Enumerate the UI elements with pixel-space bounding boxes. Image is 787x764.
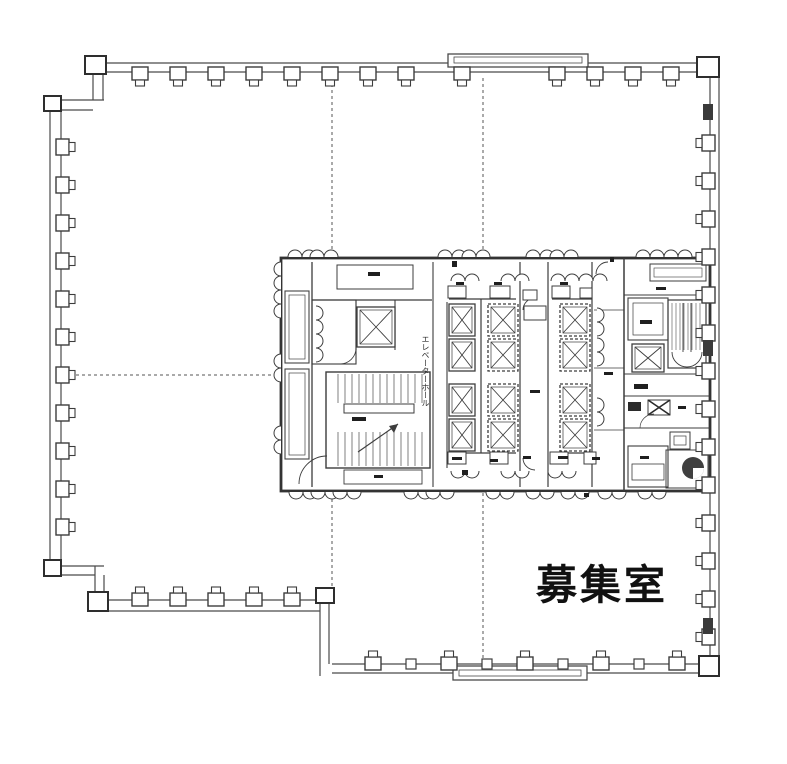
window-column [56,481,75,497]
window-column [696,553,715,569]
window-column [696,135,715,151]
scallop-vent [526,492,554,499]
label-tick [584,493,589,497]
window-column [208,587,224,606]
column-block [593,657,609,670]
column-block [702,211,715,227]
column-cap [696,633,702,642]
column-block [56,215,69,231]
label-tick [368,272,380,276]
label-tick [494,282,502,285]
column-cap [402,80,411,86]
column-block [702,553,715,569]
door-stub [580,288,592,298]
column-cap [69,181,75,190]
window-column [454,67,470,86]
elevator-shaft [560,339,590,371]
column-block [454,67,470,80]
column-block [365,657,381,670]
window-column [549,67,565,86]
window-column [56,519,75,535]
label-tick [640,320,652,324]
column-cap [667,80,676,86]
column-block [398,67,414,80]
elevator-shaft [449,304,475,336]
window-column [322,67,338,86]
column-block [322,67,338,80]
label-tick [490,459,498,462]
column-block [56,329,69,345]
label-tick [656,287,666,290]
window-column [56,405,75,421]
column-block [702,249,715,265]
column-block [663,67,679,80]
window-column [587,67,603,86]
column-block [56,367,69,383]
column-block [587,67,603,80]
column-block [702,287,715,303]
column-block [284,67,300,80]
column-block [56,291,69,307]
window-column [441,651,457,670]
wall-jog [703,104,713,120]
door-stub [524,306,546,320]
column-block [634,659,644,669]
scallop-vent [274,262,281,290]
column-block [702,515,715,531]
column-cap [369,651,378,657]
elevator-hall-label: エレベーターホール [420,335,431,419]
elevator-shaft [488,419,518,451]
scallop-vent [274,426,281,454]
column-cap [326,80,335,86]
column-cap [696,367,702,376]
elevator-shaft [560,304,590,336]
column-cap [250,587,259,593]
column-cap [696,329,702,338]
column-block [441,657,457,670]
window-column [56,253,75,269]
window-column [132,67,148,86]
window-column [56,291,75,307]
column-cap [174,80,183,86]
column-block [170,593,186,606]
column-cap [445,651,454,657]
column-cap [553,80,562,86]
column-block [56,443,69,459]
elevator-shaft [488,384,518,416]
door-stub [490,452,508,464]
column-cap [212,587,221,593]
column-block [284,593,300,606]
window-column [284,587,300,606]
column-cap [696,443,702,452]
column-cap [69,257,75,266]
column-cap [69,295,75,304]
window-column [208,67,224,86]
window-column [625,67,641,86]
scallop-vent [550,250,578,257]
column-cap [696,481,702,490]
window-column [284,67,300,86]
column-block [132,593,148,606]
column-block [246,67,262,80]
label-tick [604,372,613,375]
window-column [634,659,644,669]
column-cap [696,177,702,186]
column-cap [673,651,682,657]
window-column [56,367,75,383]
elevator-shaft [560,384,590,416]
column-cap [69,143,75,152]
wall-jog [703,618,713,634]
column-block [702,591,715,607]
column-block [702,363,715,379]
column-cap [696,215,702,224]
door-stub [448,286,466,298]
column-cap [69,523,75,532]
scallop-vent [333,492,361,499]
column-cap [458,80,467,86]
column-cap [696,557,702,566]
label-tick [352,417,366,421]
column-block [56,519,69,535]
label-tick [456,282,464,285]
door-stub [552,286,570,298]
column-block [702,401,715,417]
elevator-shaft [357,307,395,347]
elevator-shaft [449,419,475,451]
window-column [170,67,186,86]
window-column [696,173,715,189]
window-column [56,177,75,193]
window-column [56,139,75,155]
label-tick [452,457,462,460]
scallop-vent [486,492,514,499]
column-block [517,657,533,670]
column-block [208,593,224,606]
column-block [702,477,715,493]
label-tick [634,384,648,389]
column-cap [69,219,75,228]
column-cap [288,80,297,86]
scallop-vent [638,492,666,499]
window-column [517,651,533,670]
elevator-shaft [488,304,518,336]
label-tick [678,406,686,409]
column-block [246,593,262,606]
scallop-vent [274,290,281,318]
column-cap [69,371,75,380]
label-tick [462,470,468,475]
column-block [702,135,715,151]
column-block [702,325,715,341]
elevator-shaft [488,339,518,371]
window-column [696,591,715,607]
column-block [56,405,69,421]
column-cap [136,587,145,593]
column-block [702,173,715,189]
window-column [56,443,75,459]
label-tick [560,282,568,285]
scallop-vent [274,354,281,382]
window-column [593,651,609,670]
column-cap [629,80,638,86]
window-column [132,587,148,606]
label-tick [523,456,531,459]
label-tick [452,261,457,267]
window-column [365,651,381,670]
window-column [398,67,414,86]
elevator-shaft [449,384,475,416]
scallop-vent [598,492,626,499]
scallop-vent [462,250,490,257]
column-cap [696,253,702,262]
label-tick [592,457,600,460]
window-column [360,67,376,86]
column-cap [521,651,530,657]
floor-plan-page: 募集室 エレベーターホール [0,0,787,764]
column-cap [696,139,702,148]
column-cap [69,409,75,418]
floor-plan [0,0,787,764]
window-column [696,211,715,227]
window-column [56,329,75,345]
vacant-room-label: 募集室 [536,551,668,611]
column-cap [69,447,75,456]
door-stub [490,286,510,298]
door-stub [523,290,537,300]
window-column [558,659,568,669]
column-cap [696,595,702,604]
window-column [246,587,262,606]
column-cap [250,80,259,86]
canopy-north [448,54,588,67]
elevator-shaft [449,339,475,371]
elevator-shaft [632,344,664,372]
column-cap [597,651,606,657]
scallop-vent [426,492,454,499]
scallop-vent [664,250,692,257]
column-block [208,67,224,80]
elevator-shaft [560,419,590,451]
window-column [406,659,416,669]
column-cap [212,80,221,86]
column-block [56,481,69,497]
column-cap [136,80,145,86]
label-tick [530,390,540,393]
column-block [669,657,685,670]
column-cap [591,80,600,86]
window-column [246,67,262,86]
column-block [56,177,69,193]
column-block [132,67,148,80]
label-tick [610,257,614,262]
label-tick [640,456,649,459]
scallop-vent [310,250,338,257]
column-cap [696,519,702,528]
column-cap [696,405,702,414]
column-block [702,439,715,455]
scallop-vent [636,250,664,257]
column-block [406,659,416,669]
column-cap [288,587,297,593]
window-column [663,67,679,86]
column-cap [696,291,702,300]
window-column [56,215,75,231]
column-block [170,67,186,80]
column-block [56,253,69,269]
wall-jog [703,340,713,356]
window-column [482,659,492,669]
window-column [696,515,715,531]
column-block [482,659,492,669]
column-block [56,139,69,155]
window-column [669,651,685,670]
column-block [360,67,376,80]
window-column [170,587,186,606]
column-cap [69,333,75,342]
column-block [558,659,568,669]
column-cap [69,485,75,494]
column-cap [174,587,183,593]
column-block [625,67,641,80]
column-block [549,67,565,80]
label-tick [374,475,383,478]
label-tick [558,456,568,459]
column-cap [364,80,373,86]
